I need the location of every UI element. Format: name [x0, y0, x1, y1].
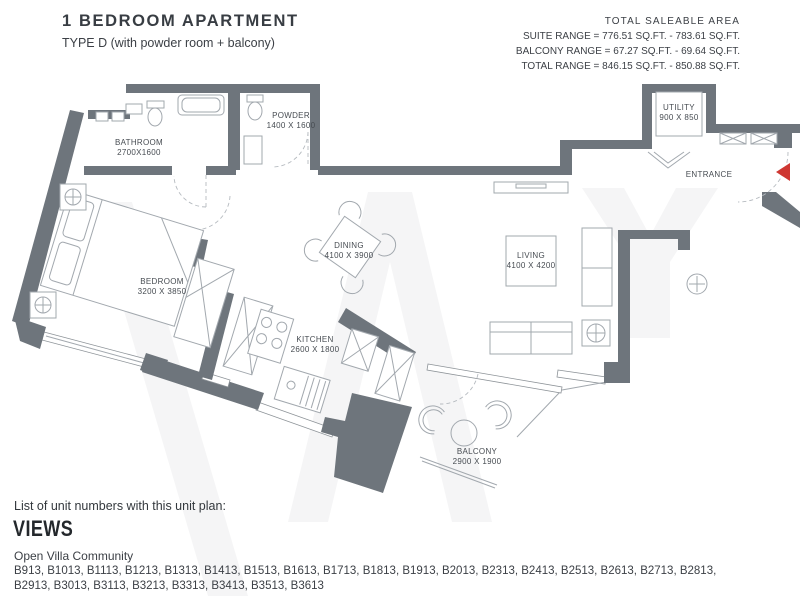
unit-list-intro: List of unit numbers with this unit plan…	[14, 499, 226, 513]
dining-label: DINING	[334, 241, 364, 250]
toilet-icon	[147, 101, 164, 126]
kitchen-sink	[274, 366, 330, 413]
living-label: LIVING	[517, 251, 545, 260]
balcony-dims: 2900 X 1900	[453, 457, 502, 466]
entrance-arrow-icon	[776, 163, 790, 181]
kitchen-cabinet	[375, 346, 414, 401]
dining-dims: 4100 X 3900	[325, 251, 374, 260]
utility-dims: 900 X 850	[659, 113, 698, 122]
powder-fixtures	[244, 95, 263, 164]
bathtub	[178, 95, 224, 115]
views-heading: VIEWS	[13, 516, 73, 542]
compass-icon	[687, 274, 707, 294]
bathroom-sink	[96, 104, 142, 121]
tv-unit	[494, 182, 568, 193]
bathroom-dims: 2700X1600	[117, 148, 161, 157]
bathroom-label: BATHROOM	[115, 138, 163, 147]
kitchen-label: KITCHEN	[296, 335, 333, 344]
utility-label: UTILITY	[663, 103, 695, 112]
living-dims: 4100 X 4200	[507, 261, 556, 270]
balcony-label: BALCONY	[457, 447, 498, 456]
bedroom-dims: 3200 X 3850	[138, 287, 187, 296]
kitchen-dims: 2600 X 1800	[291, 345, 340, 354]
side-table	[582, 320, 610, 346]
community-name: Open Villa Community	[14, 549, 133, 563]
unit-numbers-list: B913, B1013, B1113, B1213, B1313, B1413,…	[14, 564, 730, 593]
powder-dims: 1400 X 1600	[267, 121, 316, 130]
floor-plan-page: 1 BEDROOM APARTMENT TYPE D (with powder …	[0, 0, 800, 600]
powder-label: POWDER	[272, 111, 310, 120]
entrance-cabinets	[720, 133, 777, 144]
entrance-label: ENTRANCE	[686, 170, 732, 179]
bedroom-label: BEDROOM	[140, 277, 183, 286]
